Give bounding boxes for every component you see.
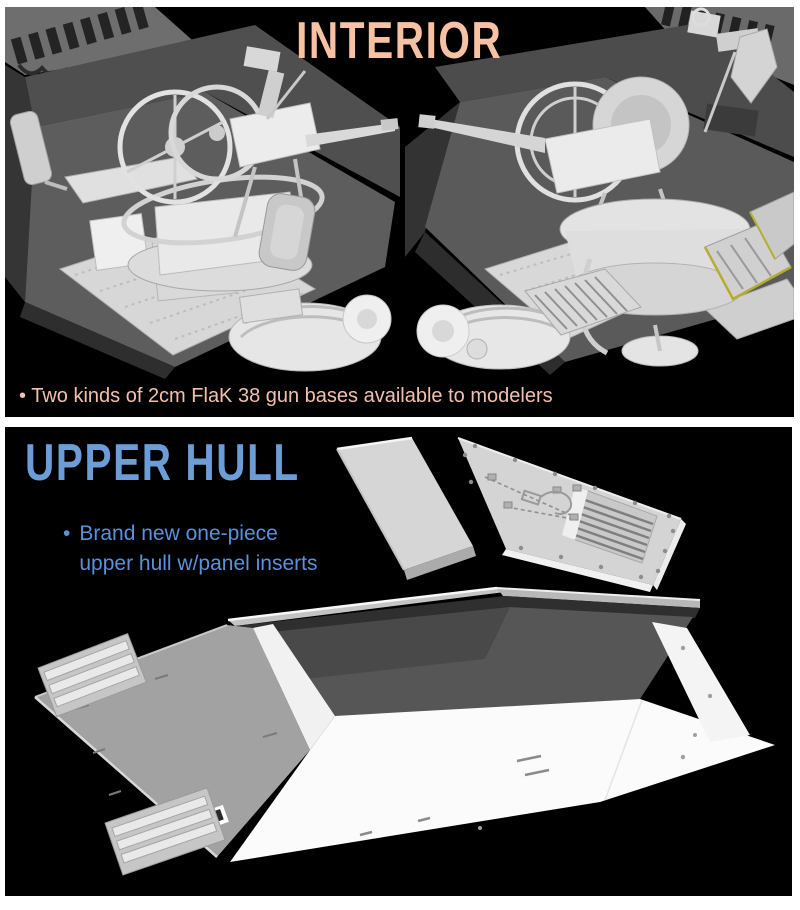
upper-hull-renders [5,427,792,896]
interior-panel: INTERIOR • Two kinds of 2cm FlaK 38 gun … [5,7,794,417]
bullet-dot-icon: • [19,385,26,408]
hull-render [35,588,775,875]
upper-hull-bullet-lines: Brand new one-piece upper hull w/panel i… [79,519,317,580]
panel-insert-large-render [458,438,686,592]
upper-hull-title: UPPER HULL [25,433,377,493]
interior-bullet-text: Two kinds of 2cm FlaK 38 gun bases avail… [31,385,552,407]
upper-hull-bullet-line1: Brand new one-piece [79,522,277,545]
interior-bullet: • Two kinds of 2cm FlaK 38 gun bases ava… [19,385,553,408]
interior-title-text: INTERIOR [296,11,502,71]
upper-hull-title-text: UPPER HULL [25,433,300,493]
upper-hull-bullet-line2: upper hull w/panel inserts [79,552,317,575]
upper-hull-bullet: • Brand new one-piece upper hull w/panel… [63,519,318,580]
upper-hull-panel: UPPER HULL • Brand new one-piece upper h… [5,427,792,896]
page: INTERIOR • Two kinds of 2cm FlaK 38 gun … [0,0,800,910]
interior-title: INTERIOR [5,11,794,71]
bullet-dot-icon: • [63,519,70,580]
